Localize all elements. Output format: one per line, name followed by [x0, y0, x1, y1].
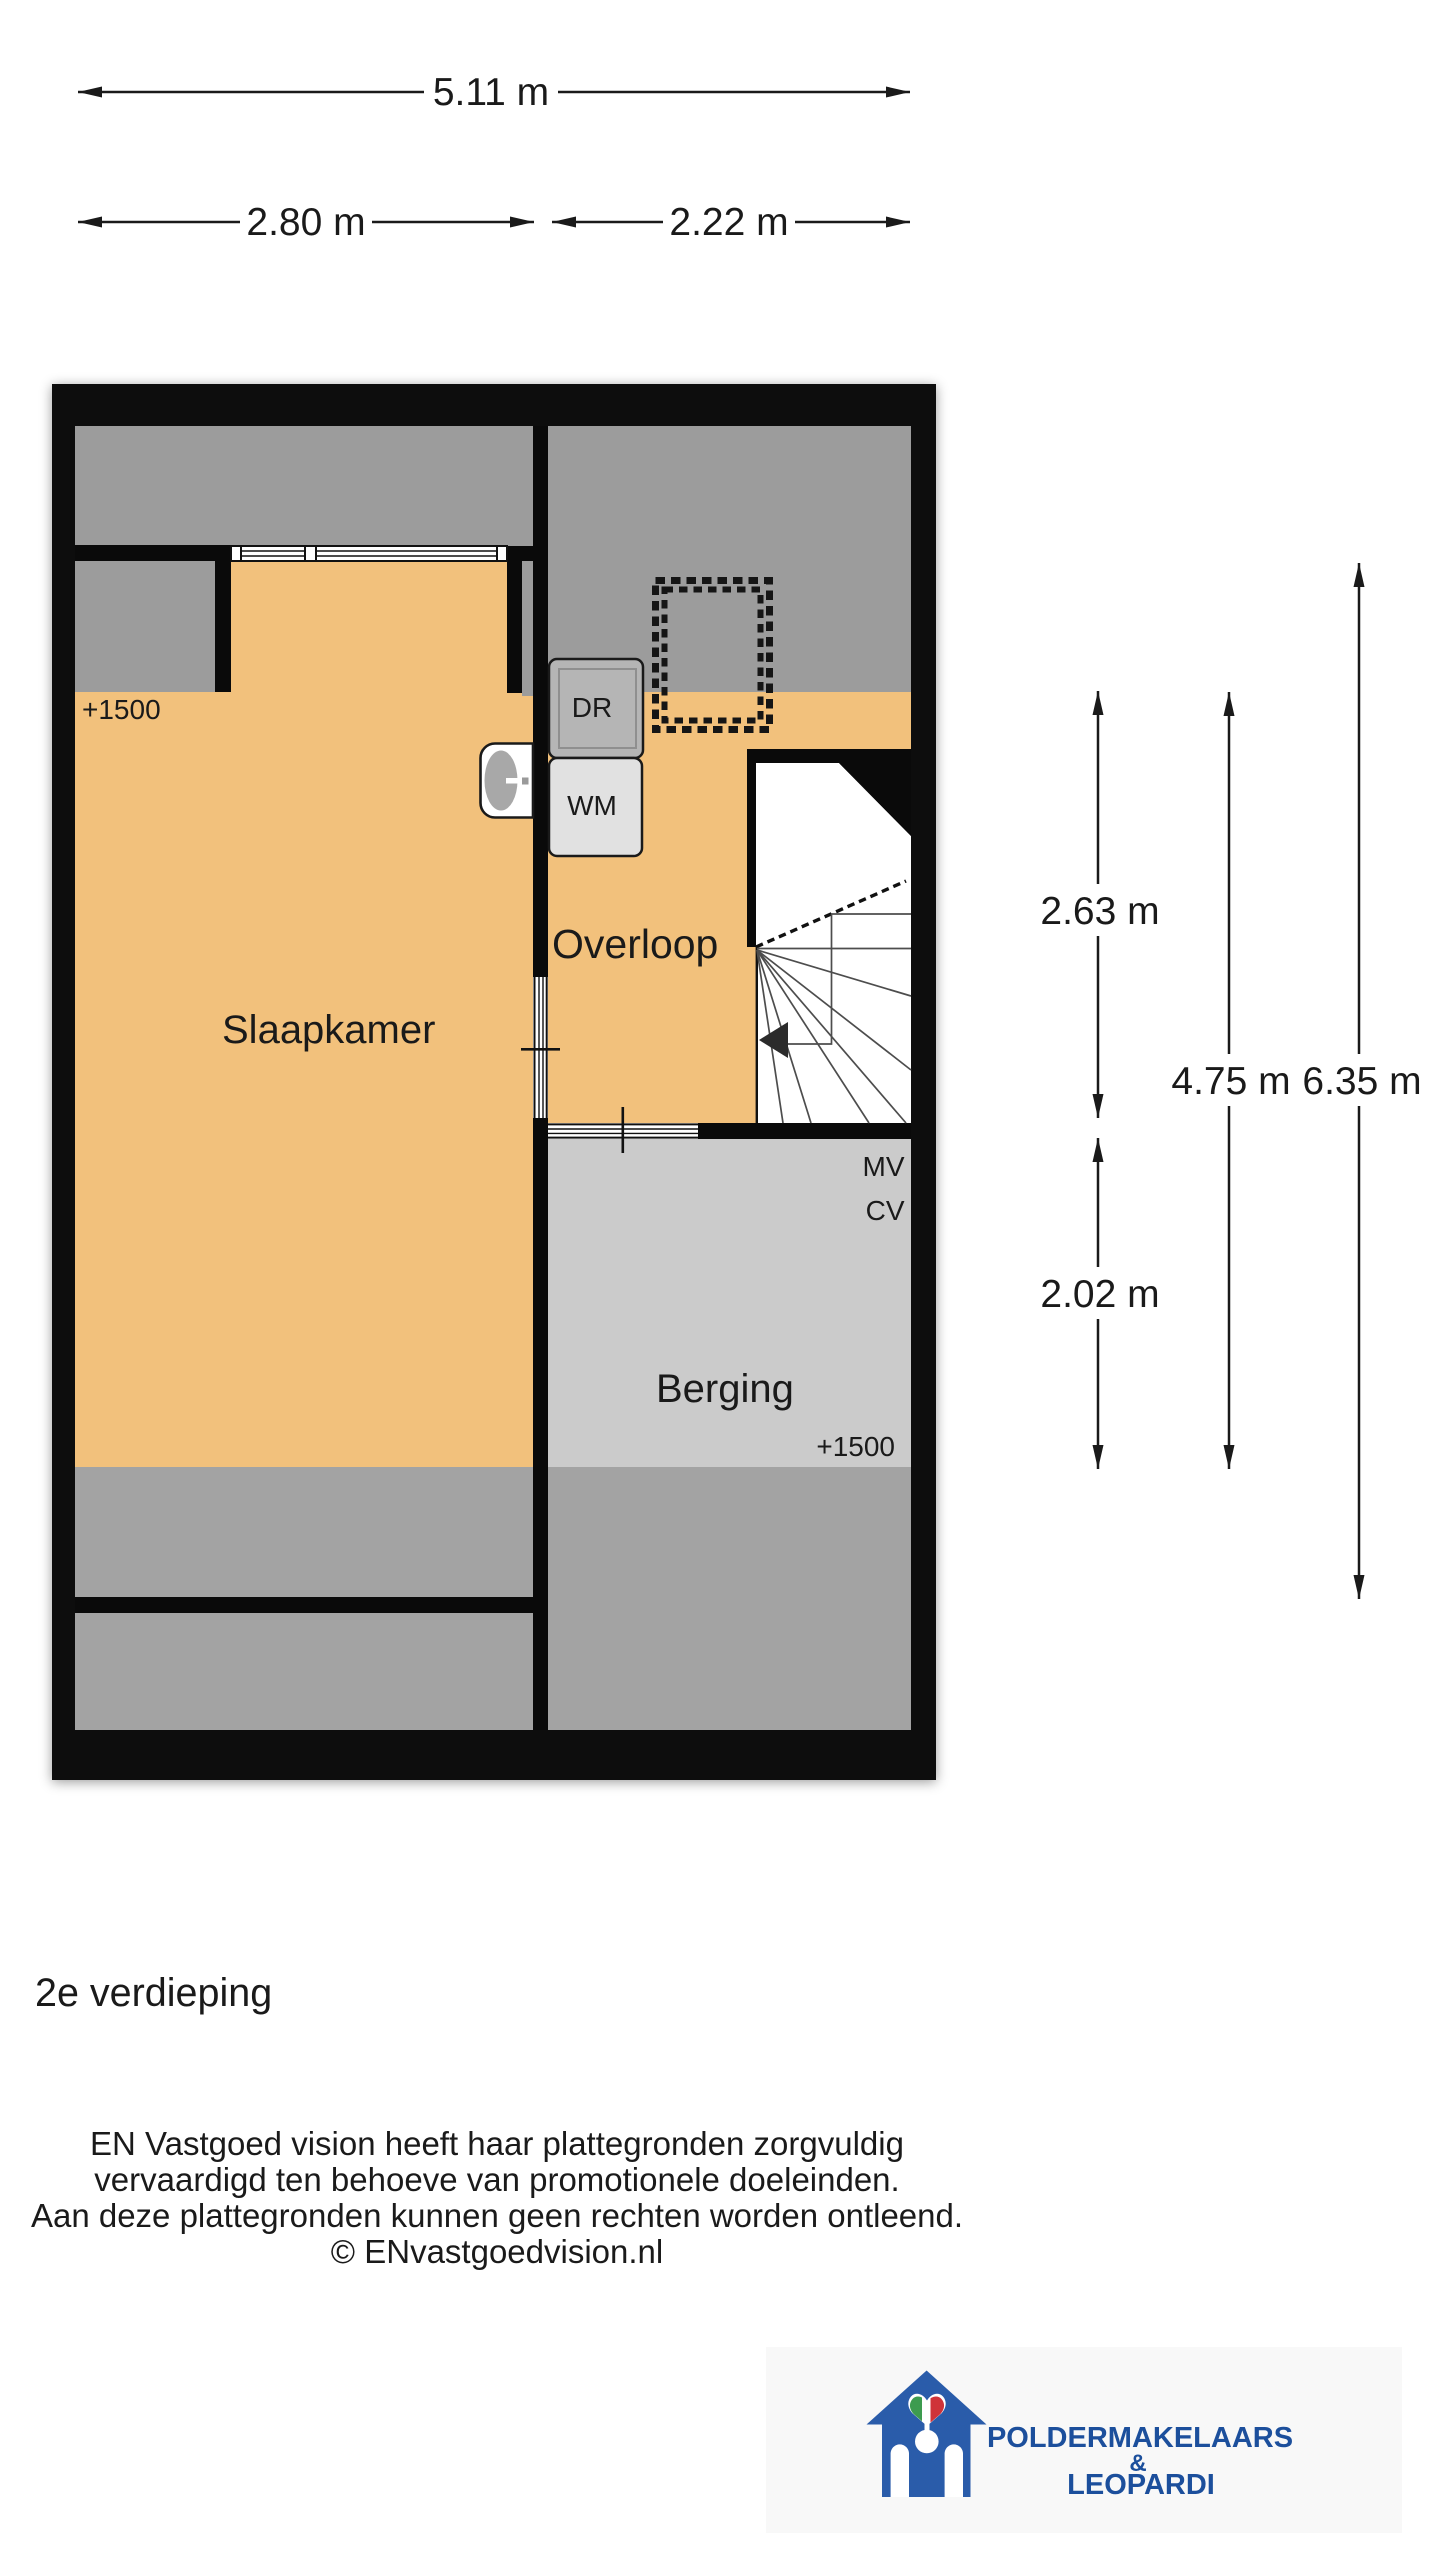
svg-text:+1500: +1500: [816, 1431, 895, 1462]
svg-text:Berging: Berging: [656, 1367, 794, 1411]
svg-text:Overloop: Overloop: [552, 921, 718, 967]
svg-text:4.75 m: 4.75 m: [1171, 1060, 1290, 1103]
svg-text:Slaapkamer: Slaapkamer: [222, 1008, 435, 1052]
svg-text:2.80 m: 2.80 m: [246, 201, 365, 244]
svg-text:5.11 m: 5.11 m: [433, 71, 549, 114]
svg-text:+1500: +1500: [82, 694, 161, 725]
svg-text:6.35 m: 6.35 m: [1302, 1060, 1421, 1103]
svg-text:vervaardigd ten behoeve van pr: vervaardigd ten behoeve van promotionele…: [94, 2161, 899, 2198]
svg-text:2.02 m: 2.02 m: [1040, 1273, 1159, 1316]
svg-text:WM: WM: [567, 790, 617, 821]
svg-text:2.63 m: 2.63 m: [1040, 890, 1159, 933]
svg-text:© ENvastgoedvision.nl: © ENvastgoedvision.nl: [331, 2233, 663, 2270]
svg-text:CV: CV: [866, 1195, 905, 1226]
svg-text:Aan deze plattegronden kunnen: Aan deze plattegronden kunnen geen recht…: [31, 2197, 963, 2234]
svg-text:MV: MV: [863, 1151, 905, 1182]
svg-text:2e verdieping: 2e verdieping: [35, 1971, 272, 2015]
svg-text:2.22 m: 2.22 m: [669, 201, 788, 244]
svg-text:EN Vastgoed vision heeft haar: EN Vastgoed vision heeft haar plattegron…: [90, 2125, 904, 2162]
svg-text:DR: DR: [572, 692, 612, 723]
svg-text:LEOPARDI: LEOPARDI: [1067, 2469, 1215, 2501]
